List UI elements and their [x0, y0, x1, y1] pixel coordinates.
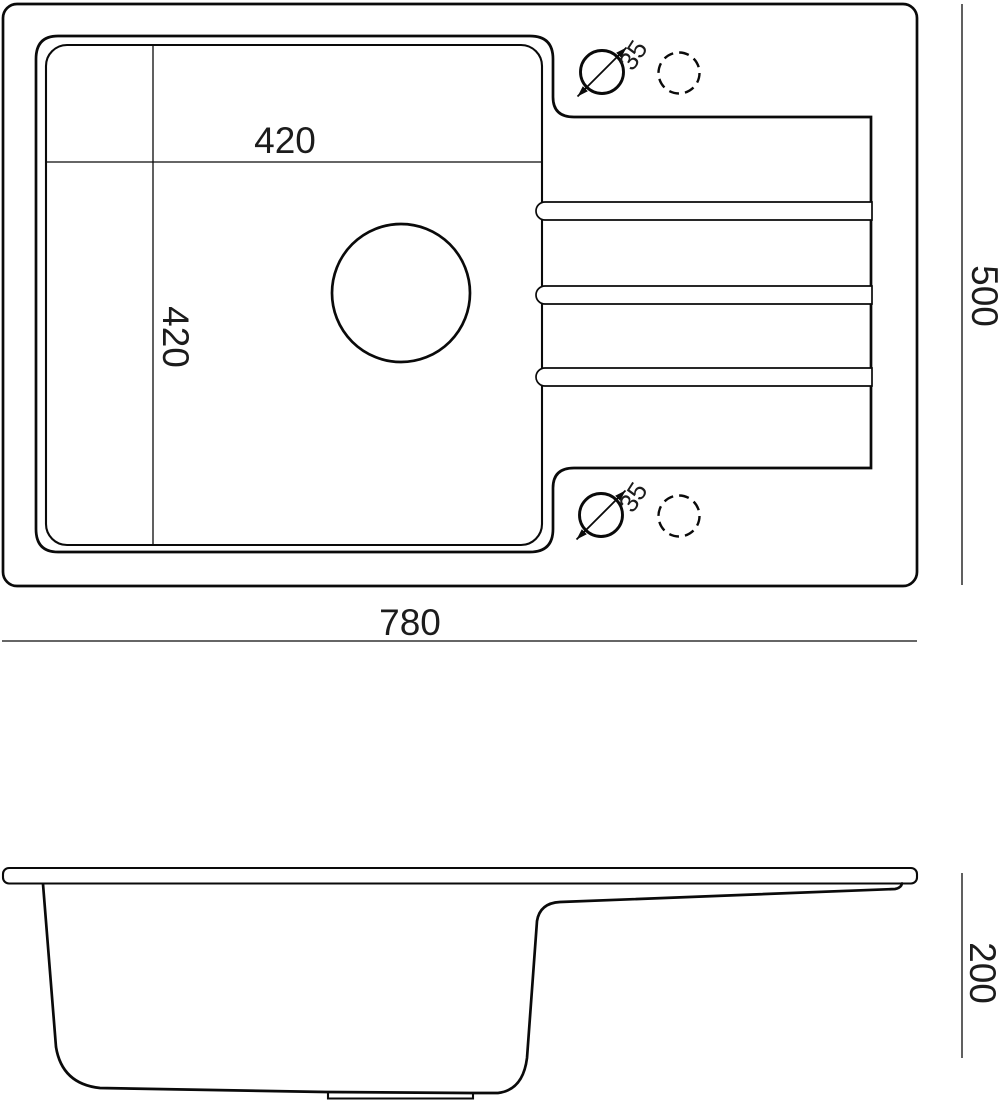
- basin-width-label: 420: [254, 120, 316, 161]
- tap-hole-bottom: 35: [577, 477, 654, 540]
- sink-technical-drawing: 35 35 420 420 500 780: [0, 0, 1002, 1100]
- drainboard-rib-3: [536, 368, 872, 386]
- top-view: 35 35 420 420 500 780: [2, 4, 1002, 643]
- drainboard-rib-1: [536, 202, 872, 220]
- overall-depth-dimension: 500: [962, 4, 1002, 585]
- tap-hole-top-diameter-label: 35: [613, 35, 654, 76]
- technical-drawing-page: 35 35 420 420 500 780: [0, 0, 1002, 1100]
- countertop-rim-profile: [3, 868, 917, 884]
- tap-hole-top-alternate-circle: [659, 53, 700, 94]
- drainboard-rib-2: [536, 286, 872, 304]
- basin-depth-label: 420: [155, 306, 196, 368]
- side-depth-dimension: 200: [962, 873, 1002, 1058]
- tap-hole-top: 35: [578, 35, 654, 97]
- tap-hole-bottom-alternate-circle: [659, 496, 700, 537]
- overall-width-dimension: 780: [2, 602, 917, 643]
- basin-profile-outline: [43, 884, 902, 1094]
- overall-depth-label: 500: [964, 265, 1002, 327]
- side-depth-label: 200: [962, 942, 1002, 1004]
- side-view: 200: [3, 868, 1002, 1099]
- tap-hole-bottom-diameter-label: 35: [613, 477, 654, 518]
- overall-width-label: 780: [379, 602, 441, 643]
- drain-hole: [332, 224, 470, 362]
